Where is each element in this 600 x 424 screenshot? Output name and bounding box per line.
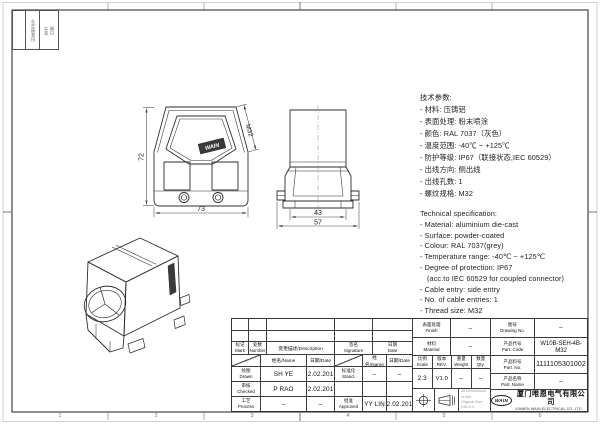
dimension-note: All Dimensions in mm Original Size DIN A… bbox=[459, 389, 490, 411]
rev-value-text: V1.0 bbox=[436, 376, 448, 382]
spec-en-line: - Cable entry: side entry bbox=[420, 285, 564, 296]
empty-cell bbox=[335, 382, 363, 397]
drawing-no-value-text: – bbox=[559, 324, 563, 331]
drawn-label: 绘图 Drawn bbox=[239, 368, 252, 379]
process-date-value: – bbox=[319, 401, 323, 408]
approved-date: 22.02.2017 bbox=[387, 397, 412, 411]
rev-empty-cell bbox=[335, 331, 373, 342]
spec-cn-title: 技术参数: bbox=[420, 92, 556, 104]
first-angle-circle-icon bbox=[415, 393, 432, 408]
qty-value: – bbox=[472, 369, 491, 389]
diagonal-cell bbox=[232, 355, 261, 367]
description-header: 变更描述/Description bbox=[267, 342, 335, 355]
part-code-value: W10B-SEH-4B-M32 bbox=[535, 338, 587, 356]
qty-header: 数量 Qty. bbox=[472, 356, 491, 369]
zone-number: 4 bbox=[343, 413, 353, 419]
part-name-value: – bbox=[535, 374, 587, 390]
stand-date-value: – bbox=[398, 371, 402, 378]
title-block-revision-section: 标记 Mark 处数 Number 变更描述/Description 签名 Si… bbox=[232, 319, 413, 411]
approved-date-value: 22.02.2017 bbox=[387, 401, 412, 408]
rev-empty-cell bbox=[335, 319, 373, 331]
signature-header: 签名 Signature bbox=[335, 342, 373, 355]
company-name-cn: 厦门唯恩电气有限公司 bbox=[515, 390, 587, 407]
part-no-value: 1111105301002 bbox=[535, 356, 587, 374]
part-name-value-text: – bbox=[559, 378, 563, 385]
wain-logo: WAIN bbox=[491, 395, 512, 406]
number-label: 处数 Number bbox=[249, 342, 265, 353]
name-col-label: 姓名/Name bbox=[272, 357, 296, 364]
description-label: 变更描述/Description bbox=[278, 345, 323, 352]
corner-block: 旧底图总号 签字 日期 bbox=[12, 10, 59, 50]
isometric-view bbox=[80, 238, 190, 353]
rev-empty-cell bbox=[373, 319, 412, 331]
spec-en-line: - Surface: powder-coated bbox=[420, 231, 564, 242]
spec-en-line: (acc.to IEC 60529 for coupled connector) bbox=[420, 274, 564, 285]
checked-name: P RAO bbox=[261, 382, 307, 397]
scale-value-text: 2:3 bbox=[418, 375, 427, 382]
spec-en-line: - Material: aluminium die-cast bbox=[420, 220, 564, 231]
stand-date: – bbox=[387, 367, 412, 382]
rev-header: 版本 REV. bbox=[433, 356, 453, 369]
zone-number: 3 bbox=[247, 413, 257, 419]
spec-cn-line: - 材料: 压铸铝 bbox=[420, 104, 556, 116]
dimension-m32: M32 bbox=[244, 124, 254, 138]
rev-empty-cell bbox=[267, 331, 335, 342]
corner-field-label: 日期 bbox=[50, 26, 54, 35]
drawing-no-label: 图号 Drawing No. bbox=[500, 322, 525, 333]
diagonal-cell bbox=[335, 355, 363, 367]
spec-cn-line: - 颜色: RAL 7037（灰色） bbox=[420, 128, 556, 140]
rev-empty-cell bbox=[232, 331, 249, 342]
name-col-label: 姓名/Name bbox=[363, 355, 386, 367]
drawing-no-cell: 图号 Drawing No. bbox=[491, 319, 535, 338]
qty-value-text: – bbox=[479, 375, 483, 382]
signature-label: 签名 Signature bbox=[344, 342, 363, 353]
drawn-name-value: SH YE bbox=[274, 371, 294, 378]
spec-cn-line: - 出线孔数: 1 bbox=[420, 176, 556, 188]
corner-field-label: 签字 bbox=[44, 26, 48, 35]
zone-number: 5 bbox=[439, 413, 449, 419]
drawn-name: SH YE bbox=[261, 367, 307, 382]
spec-block-english: Technical specification: - Material: alu… bbox=[420, 209, 564, 317]
title-block: 标记 Mark 处数 Number 变更描述/Description 签名 Si… bbox=[231, 318, 588, 412]
process-label: 工艺 Process bbox=[238, 398, 254, 409]
drawn-date: 22.02.2017 bbox=[307, 367, 335, 382]
zone-number: 2 bbox=[151, 413, 161, 419]
name-col-header: 姓名/Name bbox=[261, 355, 307, 367]
weight-value: – bbox=[452, 369, 472, 389]
spec-en-line: - No. of cable entries: 1 bbox=[420, 295, 564, 306]
scale-label: 比例 Scale bbox=[417, 356, 428, 367]
dimension-57: 57 bbox=[314, 219, 322, 226]
dimension-72: 72 bbox=[139, 153, 146, 161]
rev-label: 版本 REV. bbox=[437, 356, 447, 367]
note-dimensions: All Dimensions in mm bbox=[461, 389, 490, 400]
scale-header: 比例 Scale bbox=[413, 356, 433, 369]
material-cell: 材料 Material bbox=[413, 338, 451, 356]
corner-field-label: 旧底图总号 bbox=[31, 19, 35, 42]
material-value-text: – bbox=[469, 343, 473, 350]
date-col-label: 日期/Date bbox=[310, 357, 331, 364]
drawing-no-value: – bbox=[535, 319, 587, 338]
spec-en-line: - Degree of protection: IP67 bbox=[420, 263, 564, 274]
drawing-sheet: WAIN 72 73 M32 bbox=[0, 0, 600, 424]
checked-date: 22.02.2017 bbox=[307, 382, 335, 397]
spec-en-line: - Thread size: M32 bbox=[420, 306, 564, 317]
date-col-header: 日期/Date bbox=[307, 355, 335, 367]
corner-cell-empty bbox=[13, 11, 26, 49]
company-cell: WAIN 厦门唯恩电气有限公司 XIAMEN WAIN ELECTRICAL C… bbox=[491, 390, 587, 411]
spec-en-line: - Temperature range: -40℃ ~ +125℃ bbox=[420, 252, 564, 263]
drawn-cell: 绘图 Drawn bbox=[232, 367, 261, 382]
spec-cn-line: - 防护等级: IP67（联接状态,IEC 60529） bbox=[420, 152, 556, 164]
approved-name-value: YY LIN bbox=[364, 401, 385, 408]
part-no-cell: 产品料号 Part. No. bbox=[491, 356, 535, 374]
checked-cell: 审核 Checked bbox=[232, 382, 261, 397]
zone-number: 6 bbox=[535, 413, 545, 419]
spec-cn-line: - 出线方向: 侧出线 bbox=[420, 164, 556, 176]
empty-cell bbox=[387, 382, 412, 397]
wain-sticker: WAIN bbox=[198, 138, 226, 154]
spec-cn-line: - 表面处理: 粉末喷涂 bbox=[420, 116, 556, 128]
stand-label: 标准化 Stand. bbox=[342, 368, 356, 379]
finish-value-text: – bbox=[469, 325, 473, 332]
part-code-cell: 产品代号 Part. Code bbox=[491, 338, 535, 356]
date-col-header: 日期/Date bbox=[387, 355, 412, 367]
approved-name: YY LIN bbox=[363, 397, 387, 411]
stand-name-value: – bbox=[373, 371, 377, 378]
weight-header: 重量 Weight bbox=[452, 356, 472, 369]
rev-empty-cell bbox=[373, 331, 412, 342]
date-header: 日期 Date bbox=[373, 342, 412, 355]
projection-symbol-cone bbox=[435, 389, 459, 411]
rev-empty-cell bbox=[249, 331, 267, 342]
part-code-value-text: W10B-SEH-4B-M32 bbox=[535, 340, 587, 354]
spec-en-title: Technical specification: bbox=[420, 209, 564, 220]
approved-cell: 批准 Approved bbox=[335, 397, 363, 411]
weight-value-text: – bbox=[459, 375, 463, 382]
finish-value: – bbox=[451, 319, 490, 338]
material-label: 材料 Material bbox=[423, 341, 439, 352]
checked-date-value: 22.02.2017 bbox=[307, 386, 335, 393]
part-name-cell: 产品名称 Part. Name bbox=[491, 374, 535, 390]
spec-cn-line: - 螺纹规格: M32 bbox=[420, 188, 556, 200]
rev-empty-cell bbox=[232, 319, 249, 331]
company-name-en: XIAMEN WAIN ELECTRICAL CO.,LTD bbox=[515, 407, 582, 411]
process-cell: 工艺 Process bbox=[232, 397, 261, 411]
empty-cell bbox=[363, 382, 387, 397]
mark-header: 标记 Mark bbox=[232, 342, 249, 355]
rev-value: V1.0 bbox=[433, 369, 453, 389]
process-name: – bbox=[261, 397, 307, 411]
weight-label: 重量 Weight bbox=[454, 356, 468, 367]
stand-name: – bbox=[363, 367, 387, 382]
projection-symbol-circle bbox=[413, 389, 435, 411]
drawn-date-value: 22.02.2017 bbox=[307, 371, 335, 378]
process-name-value: – bbox=[282, 401, 286, 408]
side-view bbox=[277, 105, 359, 213]
number-header: 处数 Number bbox=[249, 342, 267, 355]
process-date: – bbox=[307, 397, 335, 411]
scale-value: 2:3 bbox=[413, 369, 433, 389]
qty-label: 数量 Qty. bbox=[476, 356, 485, 367]
approved-label: 批准 Approved bbox=[339, 398, 358, 409]
spec-en-line: - Colour: RAL 7037(grey) bbox=[420, 241, 564, 252]
name-col-header: 姓名/Name bbox=[363, 355, 387, 367]
part-name-label: 产品名称 Part. Name bbox=[501, 376, 524, 387]
title-block-info-section: 表面处理 Finish – 材料 Material – 比例 Scale 版本 … bbox=[413, 319, 587, 411]
finish-label: 表面处理 Finish bbox=[423, 322, 441, 333]
front-view: WAIN bbox=[154, 107, 248, 206]
dimension-43: 43 bbox=[314, 210, 322, 217]
rev-empty-cell bbox=[249, 319, 267, 331]
part-no-value-text: 1111105301002 bbox=[536, 361, 586, 368]
finish-cell: 表面处理 Finish bbox=[413, 319, 451, 338]
part-code-label: 产品代号 Part. Code bbox=[502, 341, 524, 352]
corner-cell-field: 旧底图总号 bbox=[26, 11, 40, 49]
material-value: – bbox=[451, 338, 490, 356]
dimension-73: 73 bbox=[197, 206, 205, 213]
corner-cell-field: 签字 日期 bbox=[40, 11, 58, 49]
date-col-label: 日期/Date bbox=[389, 357, 410, 364]
first-angle-cone-icon bbox=[437, 394, 456, 407]
date-label: 日期 Date bbox=[388, 342, 398, 353]
spec-block-chinese: 技术参数: - 材料: 压铸铝 - 表面处理: 粉末喷涂 - 颜色: RAL 7… bbox=[420, 92, 556, 200]
zone-number: 1 bbox=[55, 413, 65, 419]
checked-name-value: P RAO bbox=[273, 386, 293, 393]
spec-cn-line: - 温度范围: -40℃ ~ +125℃ bbox=[420, 140, 556, 152]
note-size: Original Size DIN A 4 bbox=[461, 400, 490, 411]
mark-label: 标记 Mark bbox=[235, 342, 245, 353]
checked-label: 审核 Checked bbox=[237, 383, 255, 394]
stand-cell: 标准化 Stand. bbox=[335, 367, 363, 382]
part-no-label: 产品料号 Part. No. bbox=[504, 359, 522, 370]
rev-empty-cell bbox=[267, 319, 335, 331]
